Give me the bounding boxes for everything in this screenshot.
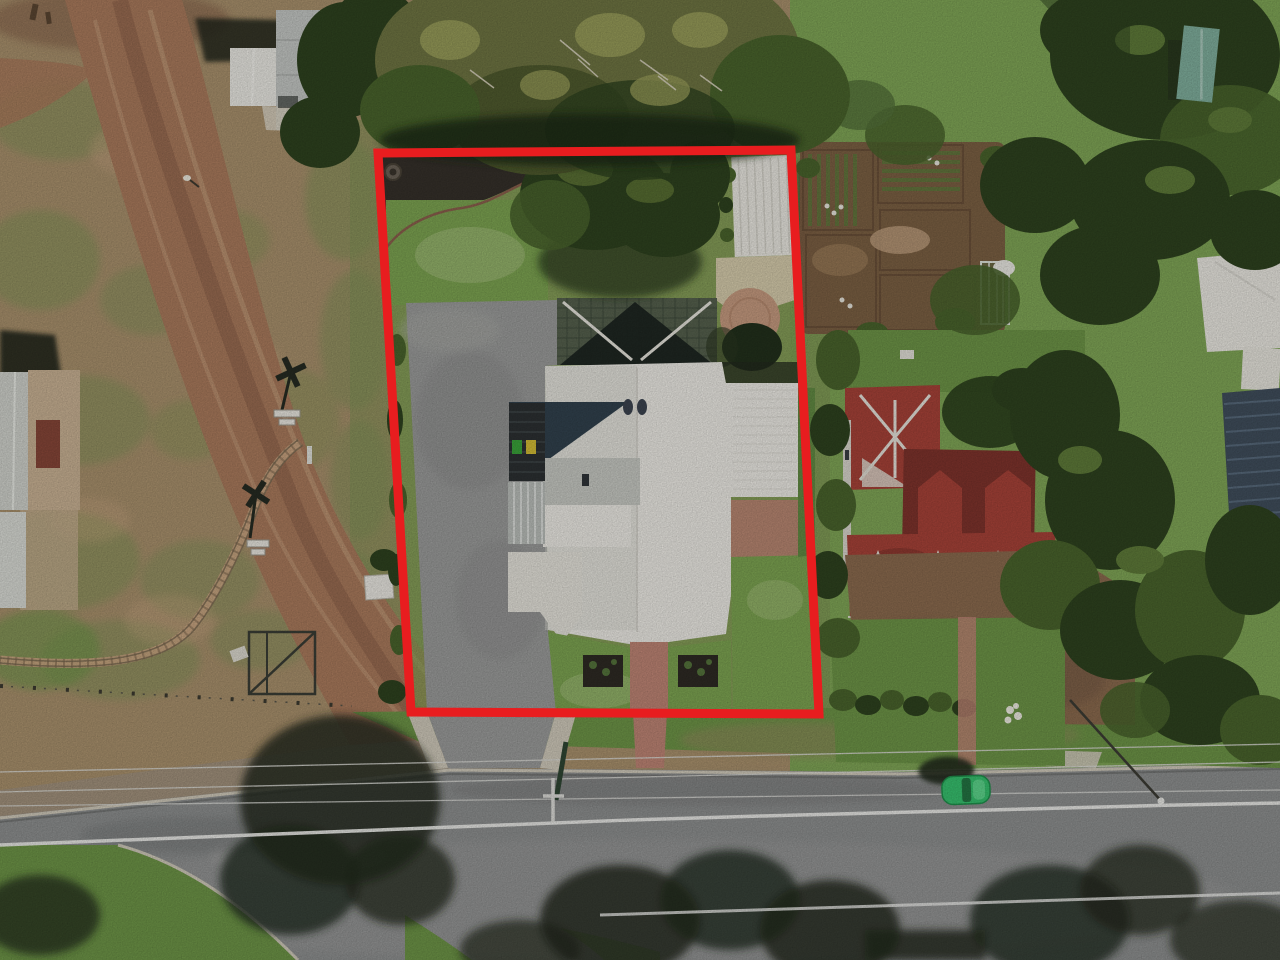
photo-grain [0, 0, 1280, 960]
aerial-photo [0, 0, 1280, 960]
aerial-photo-canvas [0, 0, 1280, 960]
